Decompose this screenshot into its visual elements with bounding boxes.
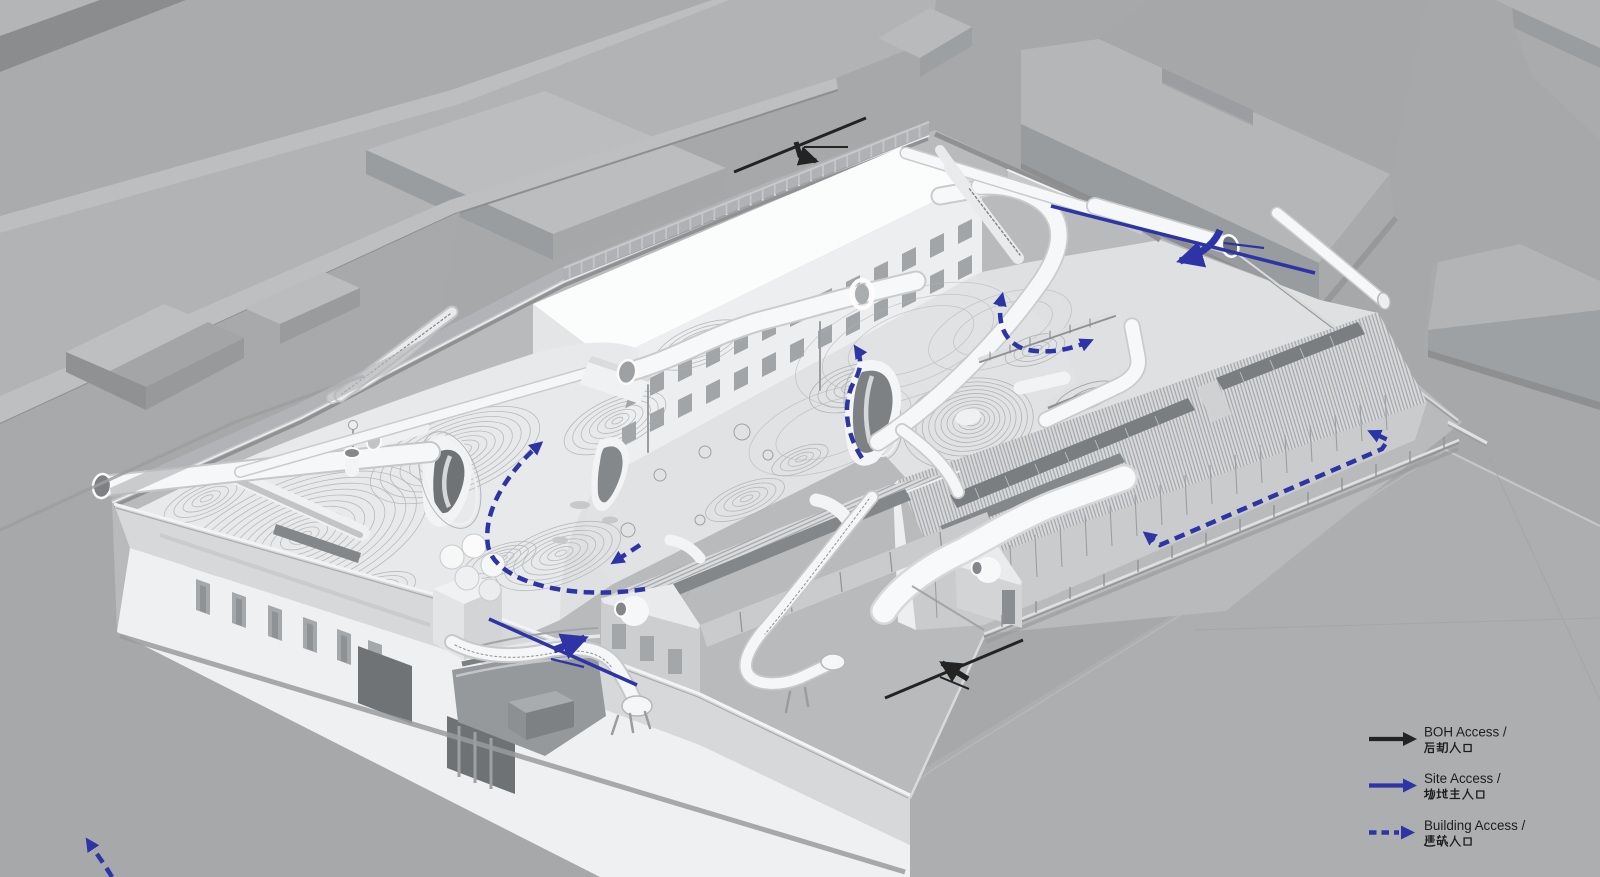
svg-text:Building Access /: Building Access / [1424,818,1526,833]
svg-text:BOH Access /: BOH Access / [1424,725,1507,740]
svg-text:Site Access /: Site Access / [1424,771,1501,786]
